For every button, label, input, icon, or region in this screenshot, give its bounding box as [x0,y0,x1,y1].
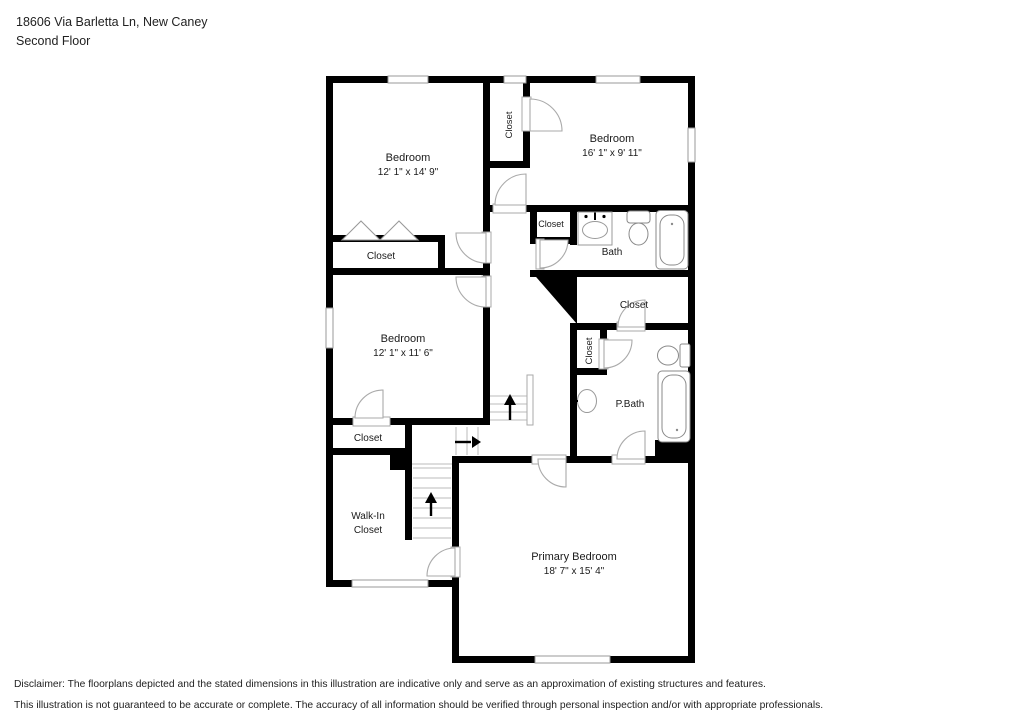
room-label-closet-hall-top: Closet [504,111,515,138]
window-symbol [388,76,428,83]
wall-segment [483,161,530,168]
bathtub-drain-icon [676,429,678,431]
bathtub-icon [660,215,684,265]
room-label-bedroom-top-left: Bedroom [386,152,431,164]
door-swing-arc [427,548,455,576]
disclaimer: Disclaimer: The floorplans depicted and … [14,675,823,716]
window-symbol [326,308,333,348]
wall-segment [655,440,688,463]
door-swing-arc [355,390,383,418]
bath-fixtures [578,211,688,270]
disclaimer-line-1: Disclaimer: The floorplans depicted and … [14,675,823,696]
toilet-icon [680,344,690,367]
faucet-icon [571,393,574,396]
room-label-walkin-line1: Walk-In [351,511,385,522]
door-swing-arc [456,277,486,307]
door-swing-arc [617,431,645,459]
door-swing-arc [604,340,632,368]
room-label-primary-bedroom: Primary Bedroom [531,551,617,563]
floor-plan-page: { "header": { "address": "18606 Via Barl… [0,0,1024,724]
wall-segment [688,76,695,663]
room-label-closet-pbath: Closet [584,337,595,364]
room-label-bedroom-middle: Bedroom [381,333,426,345]
wall-segment [326,268,490,275]
door-swing-arc [530,99,562,131]
window-symbol [596,76,640,83]
door-swing-arc [456,233,486,263]
room-dims-bedroom-top-right: 16' 1" x 9' 11" [582,148,642,159]
wall-segment [452,463,459,548]
room-label-bedroom-top-right: Bedroom [590,133,635,145]
room-label-closet-left: Closet [367,251,396,262]
wall-segment [405,418,412,540]
wall-diagonal [530,270,577,324]
wall-segment [483,263,490,277]
sink-icon [578,390,597,413]
wall-segment [530,205,537,240]
room-dims-bedroom-top-left: 12' 1" x 14' 9" [378,167,439,178]
toilet-icon [629,223,648,245]
faucet-icon [571,406,574,409]
floor-plan-svg: Bedroom 12' 1" x 14' 9" Bedroom 16' 1" x… [0,0,1024,724]
window-symbol [352,580,428,587]
wall-segment [483,307,490,425]
window-symbol [688,128,695,162]
room-label-closet-mid: Closet [620,300,649,311]
room-label-closet-below-mid: Closet [354,433,383,444]
room-dims-primary-bedroom: 18' 7" x 15' 4" [544,566,605,577]
toilet-icon [627,211,650,223]
disclaimer-line-2: This illustration is not guaranteed to b… [14,696,823,717]
faucet-icon [584,215,587,218]
wall-segment [452,576,459,663]
window-symbol [504,76,526,83]
room-label-bath: Bath [602,247,623,258]
room-dims-bedroom-middle: 12' 1" x 11' 6" [373,348,433,359]
stairs-right-arrow-icon [472,436,481,448]
bathtub-drain-icon [671,223,673,225]
room-label-closet-bath: Closet [538,219,564,229]
door-swing-arc [540,240,568,268]
toilet-icon [658,346,679,365]
sink-icon [583,222,608,239]
wall-segment [438,235,445,275]
door-swing-arc [495,174,526,205]
walls [326,76,695,663]
door-swing-arc [538,459,566,487]
room-label-pbath: P.Bath [616,399,645,410]
bathtub-icon [662,375,686,438]
bifold-door [342,221,380,240]
bifold-door [380,221,418,240]
room-label-walkin-line2: Closet [354,525,383,536]
window-symbol [535,656,610,663]
faucet-icon [602,215,605,218]
stair-rail [527,375,533,425]
